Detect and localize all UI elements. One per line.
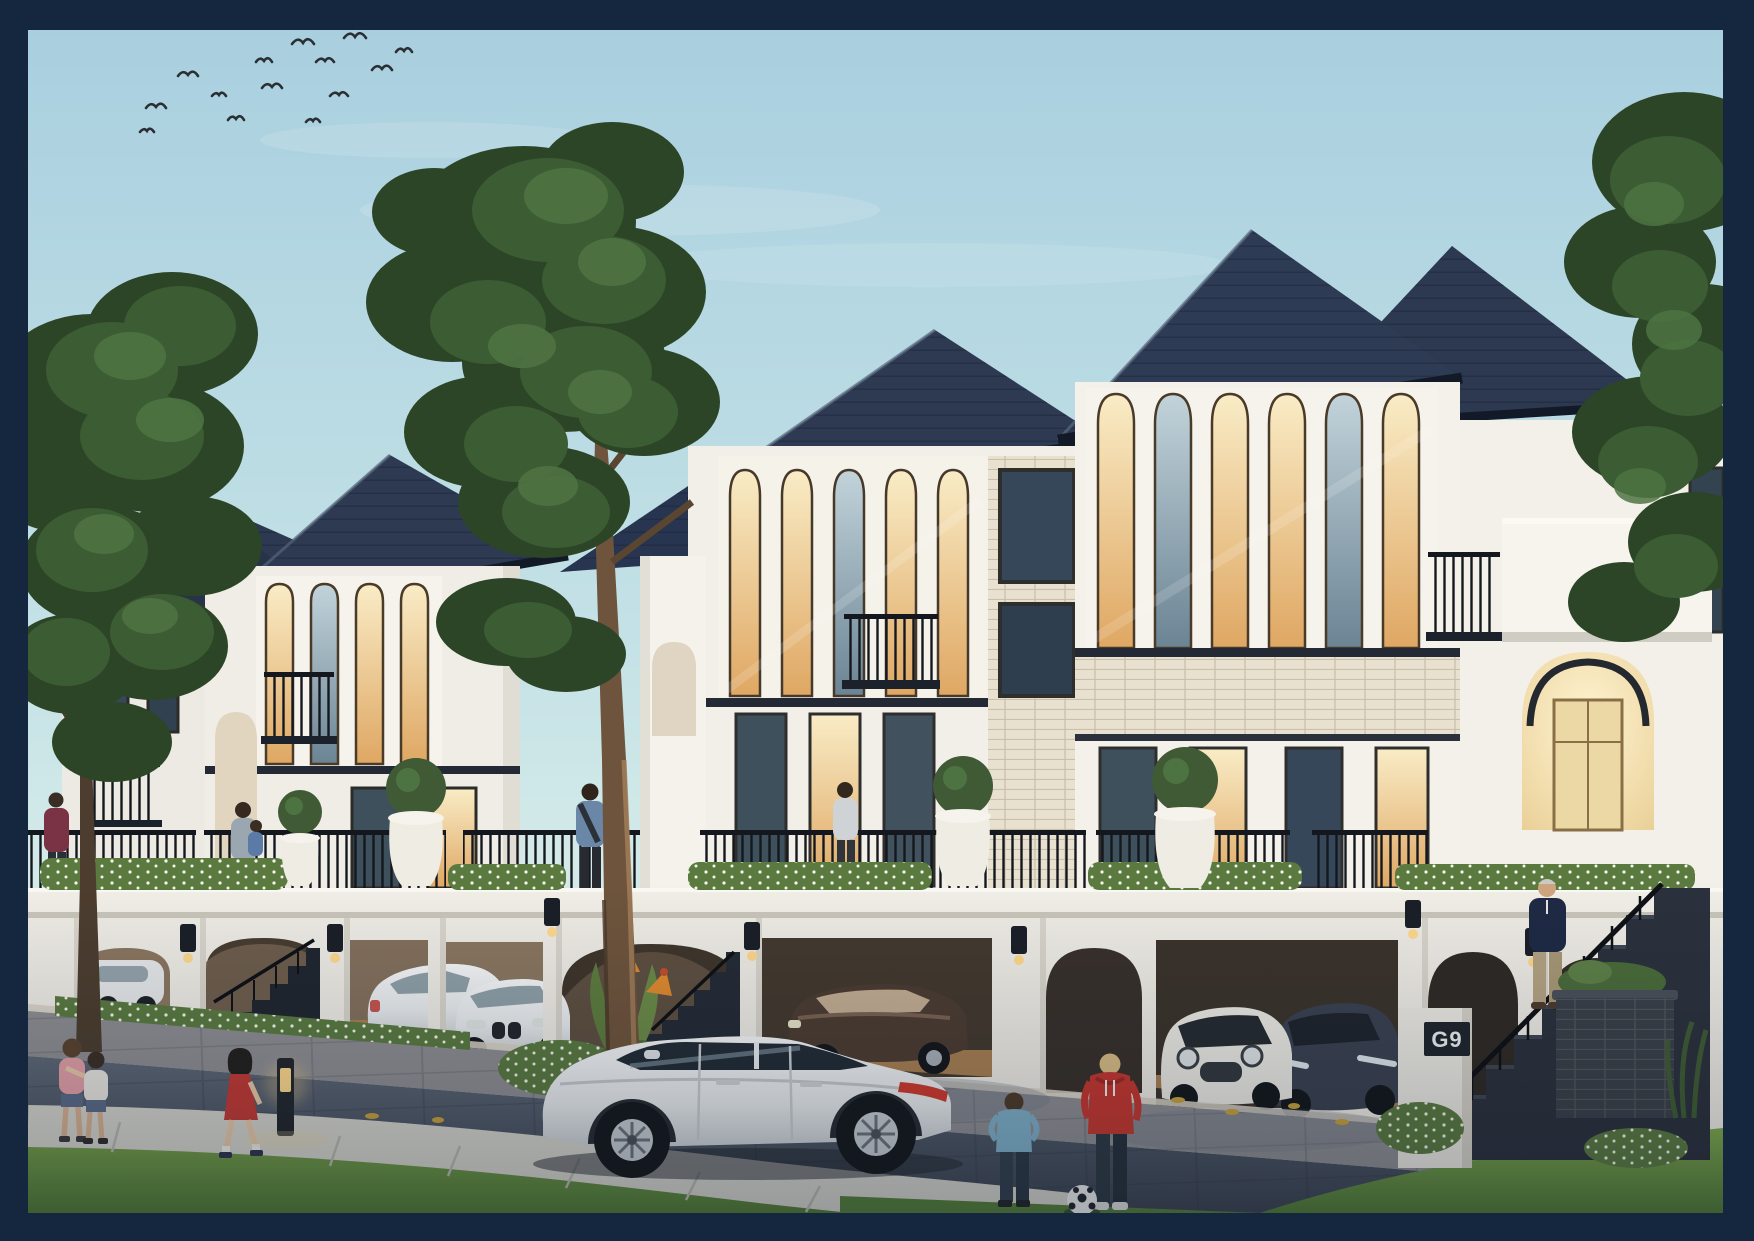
rendering-canvas: G9: [0, 0, 1754, 1241]
architectural-rendering-photo: G9: [0, 0, 1754, 1241]
dusk-overlay: [28, 30, 1723, 1213]
